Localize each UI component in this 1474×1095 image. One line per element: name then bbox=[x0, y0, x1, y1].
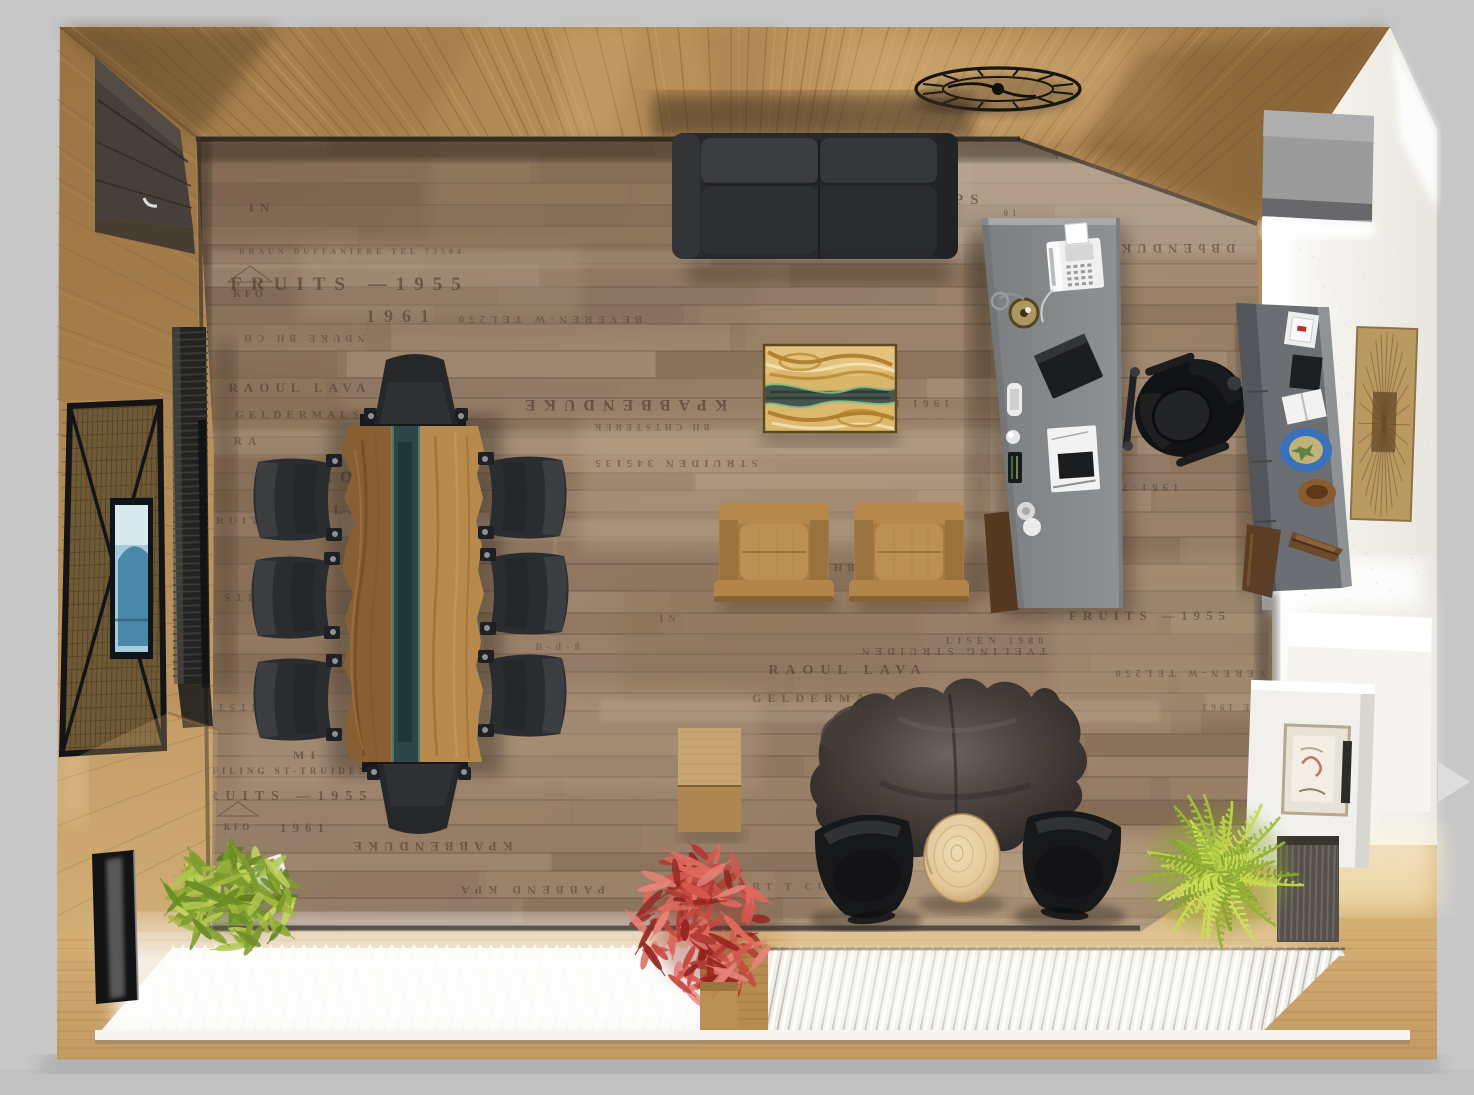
svg-text:RAOUL LAVA: RAOUL LAVA bbox=[229, 380, 372, 395]
svg-text:RAOUL LAVA: RAOUL LAVA bbox=[768, 663, 927, 678]
svg-text:IN: IN bbox=[659, 614, 680, 625]
svg-text:MI: MI bbox=[293, 748, 321, 762]
svg-text:KFO: KFO bbox=[233, 289, 267, 300]
svg-text:IN: IN bbox=[249, 200, 275, 215]
svg-text:1961: 1961 bbox=[280, 820, 330, 835]
svg-text:KPABBENDUKE: KPABBENDUKE bbox=[347, 839, 512, 854]
svg-text:BH CHTSTEREK: BH CHTSTEREK bbox=[590, 422, 709, 432]
svg-text:PABBEND KPA: PABBEND KPA bbox=[455, 883, 605, 897]
svg-text:B-d-8: B-d-8 bbox=[536, 642, 585, 653]
svg-text:FRUITS —1955: FRUITS —1955 bbox=[193, 789, 374, 804]
svg-text:KFO: KFO bbox=[224, 822, 253, 832]
svg-text:KPABBENDUKE: KPABBENDUKE bbox=[517, 396, 727, 413]
svg-text:TVELING STRUIDEN: TVELING STRUIDEN bbox=[857, 645, 1047, 657]
svg-text:NDUKE BH CH: NDUKE BH CH bbox=[239, 332, 365, 343]
svg-text:BEVEREN-W TEL250: BEVEREN-W TEL250 bbox=[454, 313, 643, 325]
svg-text:STRUIDEN 345135: STRUIDEN 345135 bbox=[590, 457, 758, 469]
svg-text:BRAUN DUFFANIERE TEL 73504: BRAUN DUFFANIERE TEL 73504 bbox=[239, 247, 465, 256]
svg-text:RA: RA bbox=[233, 434, 262, 448]
svg-text:1961: 1961 bbox=[366, 306, 438, 326]
svg-text:01: 01 bbox=[1004, 208, 1021, 218]
